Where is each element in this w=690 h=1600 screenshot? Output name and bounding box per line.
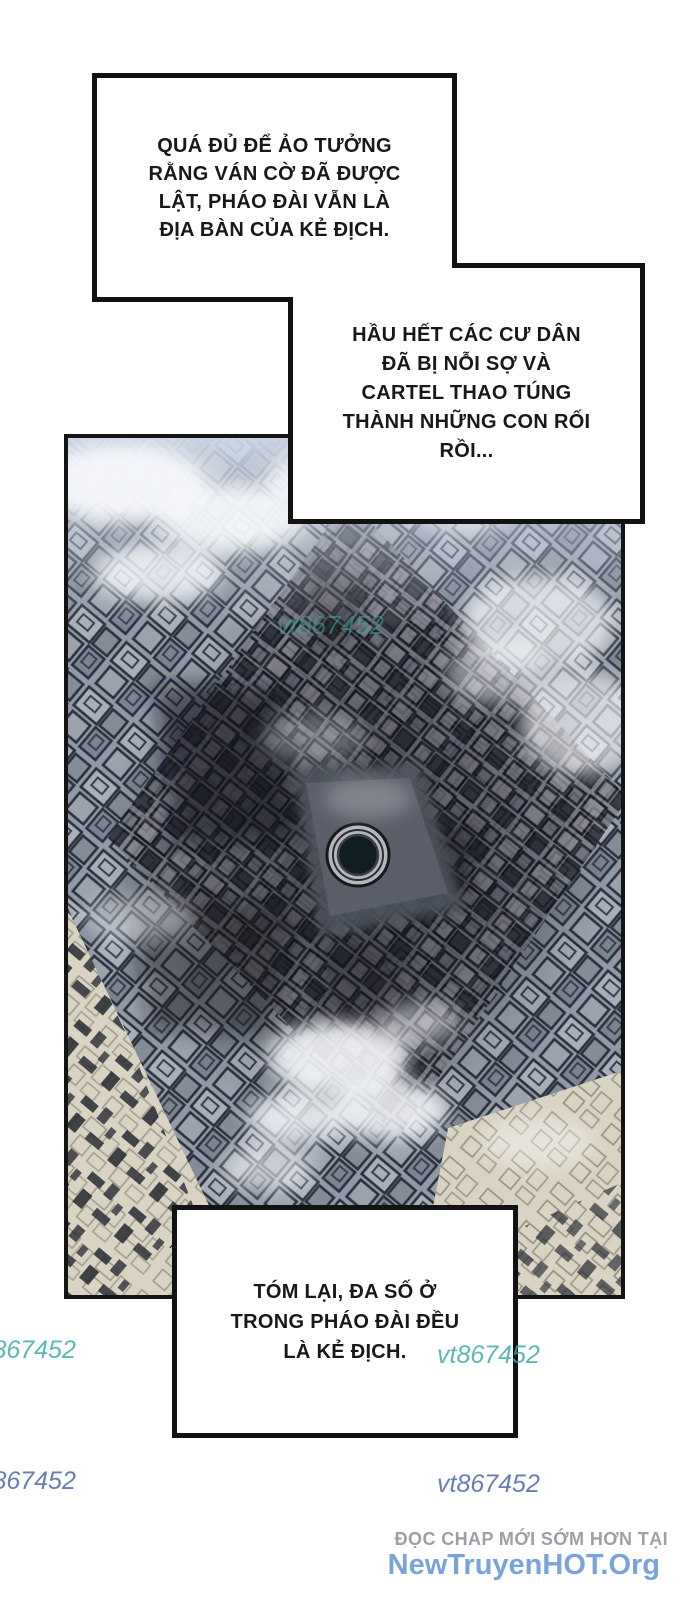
- speech-line: LÀ KẺ ĐỊCH.: [283, 1337, 406, 1367]
- watermark-bottom-left-blue: vt867452: [0, 1467, 76, 1496]
- fortress-aerial-illustration: [68, 438, 621, 1295]
- comic-page: QUÁ ĐỦ ĐỂ ẢO TƯỞNG RẰNG VÁN CỜ ĐÃ ĐƯỢC L…: [0, 0, 690, 1600]
- speech-line: HẦU HẾT CÁC CƯ DÂN: [352, 321, 581, 350]
- speech-line: ĐỊA BÀN CỦA KẺ ĐỊCH.: [159, 216, 389, 244]
- promo-text: ĐỌC CHAP MỚI SỚM HƠN TẠI: [395, 1529, 668, 1550]
- speech-bubble-2: HẦU HẾT CÁC CƯ DÂN ĐÃ BỊ NỖI SỢ VÀ CARTE…: [295, 270, 638, 517]
- speech-bubble-3: TÓM LẠI, ĐA SỐ Ở TRONG PHÁO ĐÀI ĐỀU LÀ K…: [172, 1205, 518, 1438]
- watermark-bottom-right-teal: vt867452: [437, 1341, 540, 1370]
- speech-line: TÓM LẠI, ĐA SỐ Ở: [253, 1277, 436, 1307]
- speech-line: RỒI...: [439, 437, 493, 466]
- speech-line: THÀNH NHỮNG CON RỐI: [343, 408, 591, 437]
- speech-bubble-1: QUÁ ĐỦ ĐỂ ẢO TƯỞNG RẰNG VÁN CỜ ĐÃ ĐƯỢC L…: [99, 80, 450, 295]
- watermark-top: vt867452: [277, 610, 384, 641]
- speech-line: QUÁ ĐỦ ĐỂ ẢO TƯỞNG: [157, 132, 392, 160]
- artwork-panel: [64, 434, 625, 1299]
- speech-line: TRONG PHÁO ĐÀI ĐỀU: [231, 1307, 460, 1337]
- site-name: NewTruyenHOT.Org: [388, 1549, 660, 1582]
- speech-line: RẰNG VÁN CỜ ĐÃ ĐƯỢC: [149, 160, 401, 188]
- speech-line: CARTEL THAO TÚNG: [362, 379, 572, 408]
- watermark-bottom-right-blue: vt867452: [437, 1470, 540, 1499]
- speech-line: LẬT, PHÁO ĐÀI VẪN LÀ: [159, 188, 391, 216]
- speech-line: ĐÃ BỊ NỖI SỢ VÀ: [382, 350, 551, 379]
- watermark-bottom-left-teal: vt867452: [0, 1336, 76, 1365]
